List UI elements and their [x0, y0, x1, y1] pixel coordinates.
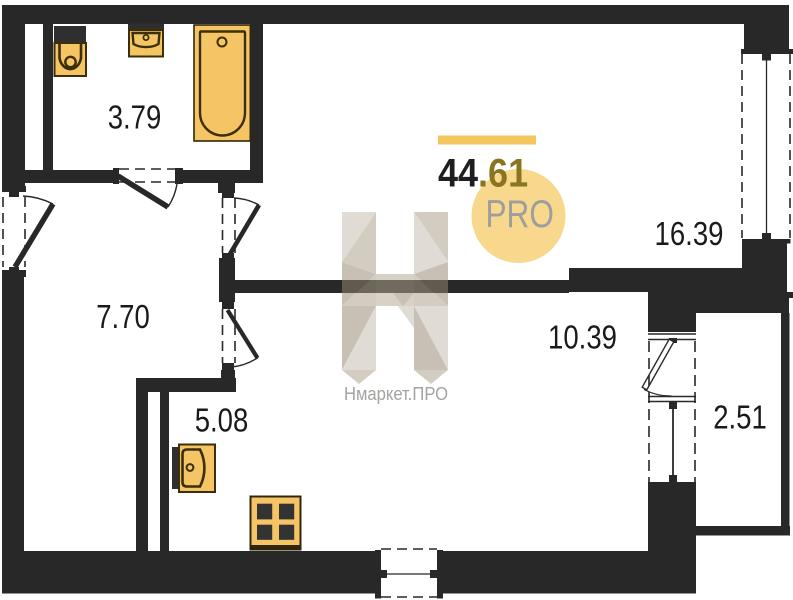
svg-text:5.08: 5.08 — [195, 402, 249, 439]
svg-text:Нмаркет.ПРО: Нмаркет.ПРО — [344, 383, 448, 404]
svg-text:2.51: 2.51 — [713, 399, 767, 436]
svg-text:PRO: PRO — [486, 192, 554, 236]
svg-text:16.39: 16.39 — [655, 216, 724, 253]
svg-text:3.79: 3.79 — [108, 99, 162, 136]
svg-text:44.61: 44.61 — [438, 152, 528, 196]
svg-text:7.70: 7.70 — [96, 299, 150, 336]
svg-text:10.39: 10.39 — [548, 319, 617, 356]
